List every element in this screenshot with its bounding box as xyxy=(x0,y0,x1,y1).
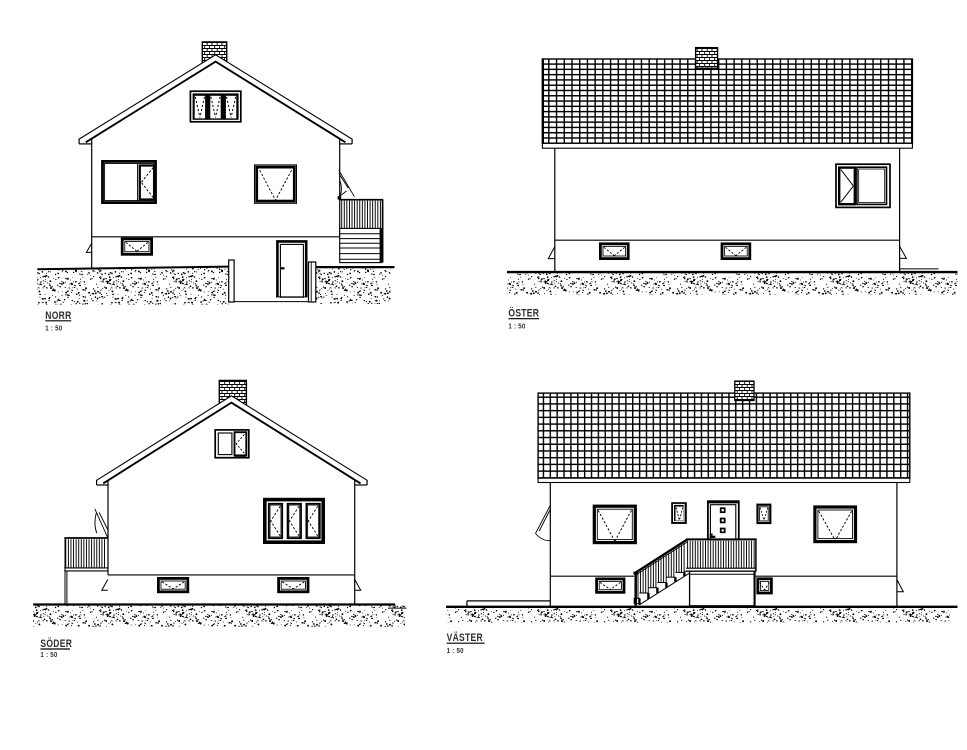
svg-text:1 : 50: 1 : 50 xyxy=(508,323,525,331)
svg-text:1 : 50: 1 : 50 xyxy=(447,647,464,655)
svg-text:1 : 50: 1 : 50 xyxy=(45,325,62,333)
svg-text:1 : 50: 1 : 50 xyxy=(40,652,57,660)
